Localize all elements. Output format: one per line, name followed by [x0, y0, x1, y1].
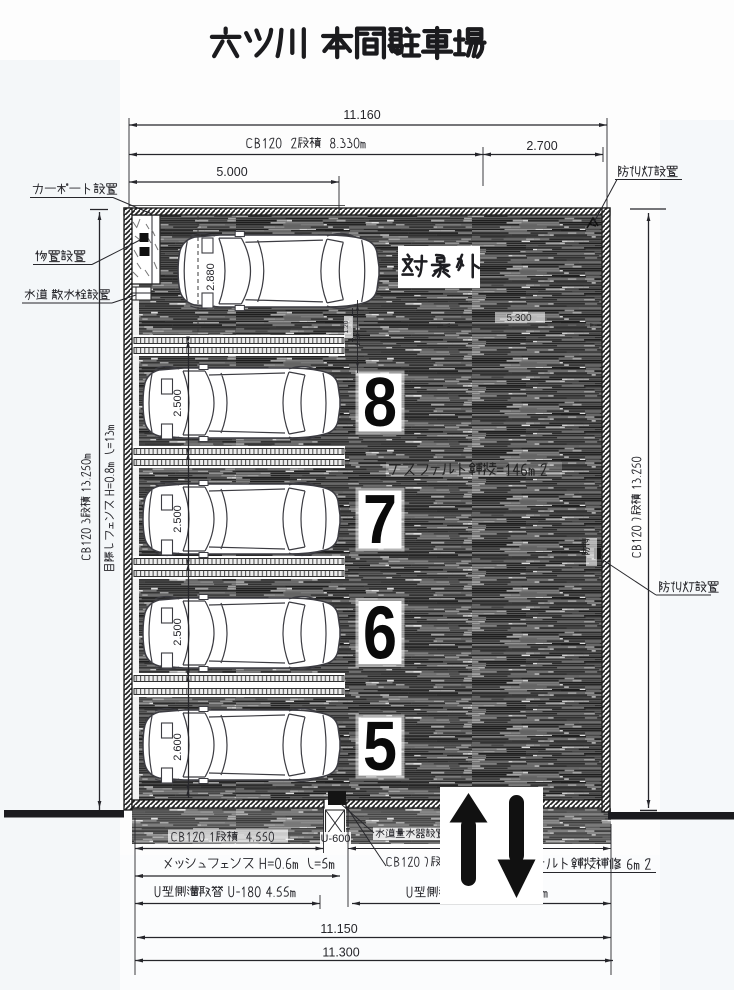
- svg-text:11.160: 11.160: [343, 108, 380, 122]
- svg-text:5.300: 5.300: [506, 313, 531, 324]
- svg-text:5: 5: [363, 707, 397, 785]
- svg-text:5.000: 5.000: [216, 165, 247, 179]
- svg-text:1.60: 1.60: [355, 333, 362, 346]
- svg-text:2.500: 2.500: [172, 505, 184, 533]
- svg-text:1.20: 1.20: [343, 320, 350, 333]
- svg-text:8: 8: [363, 363, 397, 441]
- svg-text:6: 6: [363, 591, 397, 675]
- svg-text:11.150: 11.150: [320, 922, 357, 936]
- svg-text:2.880: 2.880: [205, 263, 217, 291]
- svg-text:2.700: 2.700: [526, 139, 557, 153]
- svg-text:2.500: 2.500: [172, 389, 184, 417]
- svg-text:U-600: U-600: [321, 833, 351, 845]
- svg-text:11.300: 11.300: [322, 946, 359, 960]
- svg-text:2.500: 2.500: [172, 618, 184, 646]
- svg-text:2.600: 2.600: [172, 733, 184, 761]
- svg-text:7: 7: [363, 480, 397, 558]
